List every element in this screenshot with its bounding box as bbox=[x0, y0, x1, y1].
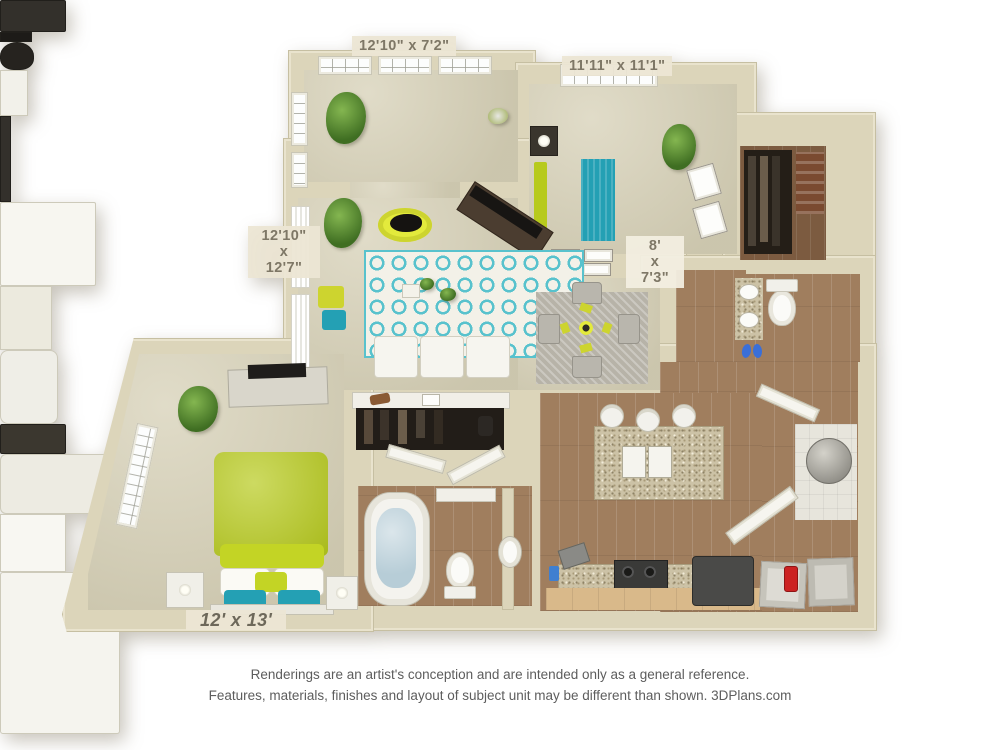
cat bbox=[390, 214, 422, 232]
coffee-table-book bbox=[402, 284, 420, 298]
dim-label-bedroom-bottom: 12' x 13' bbox=[186, 610, 286, 630]
hall-garment-1 bbox=[364, 410, 373, 444]
sunroom-window-left bbox=[291, 92, 308, 146]
bed-top-mattress bbox=[0, 202, 96, 286]
sunroom-window-3 bbox=[438, 56, 492, 75]
sofa-cushion-3 bbox=[466, 336, 510, 378]
dining-centerpiece bbox=[578, 320, 594, 336]
dim-hall-width: 8' bbox=[633, 238, 677, 254]
island-sink-left bbox=[622, 446, 646, 478]
armchair-pillow-lime bbox=[318, 286, 344, 308]
coffee-table bbox=[0, 424, 66, 454]
dim-label-living: 12'10" x 12'7" bbox=[248, 226, 320, 278]
bathroom-shelf bbox=[436, 488, 496, 502]
hall-garment-3 bbox=[398, 410, 407, 444]
floorplan-building: 12'10" x 7'2" 11'11" x 11'1" 12'10" x 12… bbox=[0, 0, 1000, 750]
stove-burner-2 bbox=[644, 566, 656, 578]
dining-chair-right bbox=[618, 314, 640, 344]
sunroom-window-left-2 bbox=[291, 152, 308, 188]
dining-chair-top bbox=[572, 282, 602, 304]
office-chair bbox=[0, 42, 34, 70]
closet-duffel bbox=[478, 416, 493, 436]
hall-garment-4 bbox=[416, 410, 425, 438]
armchair bbox=[0, 350, 58, 424]
nightstand-left bbox=[166, 572, 204, 608]
bed-bottom-pillow-lime bbox=[220, 544, 324, 568]
bar-stool-1 bbox=[600, 404, 624, 428]
dim-living-height: 12'7" bbox=[255, 260, 313, 276]
dim-label-bedroom-top: 11'11" x 11'1" bbox=[562, 56, 672, 76]
armchair-pillow-teal bbox=[322, 310, 346, 330]
bed-bottom-comforter bbox=[214, 452, 328, 556]
fire-extinguisher bbox=[784, 566, 798, 592]
dim-living-width: 12'10" bbox=[255, 228, 313, 244]
sofa-cushion-2 bbox=[420, 336, 464, 378]
gallery-frame-2 bbox=[584, 249, 613, 262]
dining-chair-bottom bbox=[572, 356, 602, 378]
closet-garment-1 bbox=[748, 156, 756, 246]
closet-garment-3 bbox=[772, 156, 780, 246]
dim-label-sunroom: 12'10" x 7'2" bbox=[352, 36, 456, 56]
bedroom-bottom-tv bbox=[248, 363, 306, 379]
bar-stool-2 bbox=[636, 408, 660, 432]
closet-linen-tower bbox=[796, 152, 824, 214]
floorplan-render: 12'10" x 7'2" 11'11" x 11'1" 12'10" x 12… bbox=[0, 0, 1000, 750]
vanity-sink-2 bbox=[739, 312, 759, 328]
sunroom-window-1 bbox=[318, 56, 372, 75]
closet-shelf-basket bbox=[422, 394, 440, 406]
office-desk bbox=[0, 0, 66, 32]
bar-stool-3 bbox=[672, 404, 696, 428]
bedroom-top-nightstand bbox=[530, 126, 558, 156]
disclaimer-line-1: Renderings are an artist's conception an… bbox=[0, 664, 1000, 685]
disclaimer-line-2: Features, materials, finishes and layout… bbox=[0, 685, 1000, 706]
dining-chair-left bbox=[538, 314, 560, 344]
bathtub-water bbox=[376, 508, 416, 588]
desk-monitor bbox=[0, 32, 32, 42]
refrigerator bbox=[692, 556, 754, 606]
nightstand-right bbox=[326, 576, 358, 610]
bathroom-top-shower bbox=[0, 286, 52, 350]
dim-label-hall-bath: 8' x 7'3" bbox=[626, 236, 684, 288]
dryer bbox=[807, 557, 855, 607]
bed-top-runner-teal bbox=[581, 159, 615, 241]
bathroom-bottom-toilet bbox=[446, 552, 474, 588]
detergent-bottle bbox=[549, 566, 559, 581]
hall-garment-2 bbox=[380, 410, 389, 440]
water-heater bbox=[806, 438, 852, 484]
stove-burner-1 bbox=[622, 566, 634, 578]
vanity-sink-1 bbox=[739, 284, 759, 300]
wall-mounted-sink bbox=[498, 536, 522, 568]
sofa-cushion-1 bbox=[374, 336, 418, 378]
dim-hall-x: x bbox=[633, 254, 677, 270]
hall-garment-5 bbox=[434, 410, 443, 444]
island-sink-right bbox=[648, 446, 672, 478]
bed-bottom-pillow-lime-small bbox=[255, 572, 287, 592]
washer bbox=[759, 561, 807, 609]
dim-hall-height: 7'3" bbox=[633, 270, 677, 286]
bed-top-headboard bbox=[0, 116, 11, 202]
dining-table bbox=[0, 514, 66, 572]
closet-garment-2 bbox=[760, 156, 768, 242]
sunroom-etagere bbox=[0, 70, 28, 116]
dim-living-x: x bbox=[255, 244, 313, 260]
sunroom-window-2 bbox=[378, 56, 432, 75]
bathroom-top-toilet bbox=[768, 290, 796, 326]
disclaimer: Renderings are an artist's conception an… bbox=[0, 664, 1000, 706]
gallery-frame-4 bbox=[582, 263, 611, 276]
